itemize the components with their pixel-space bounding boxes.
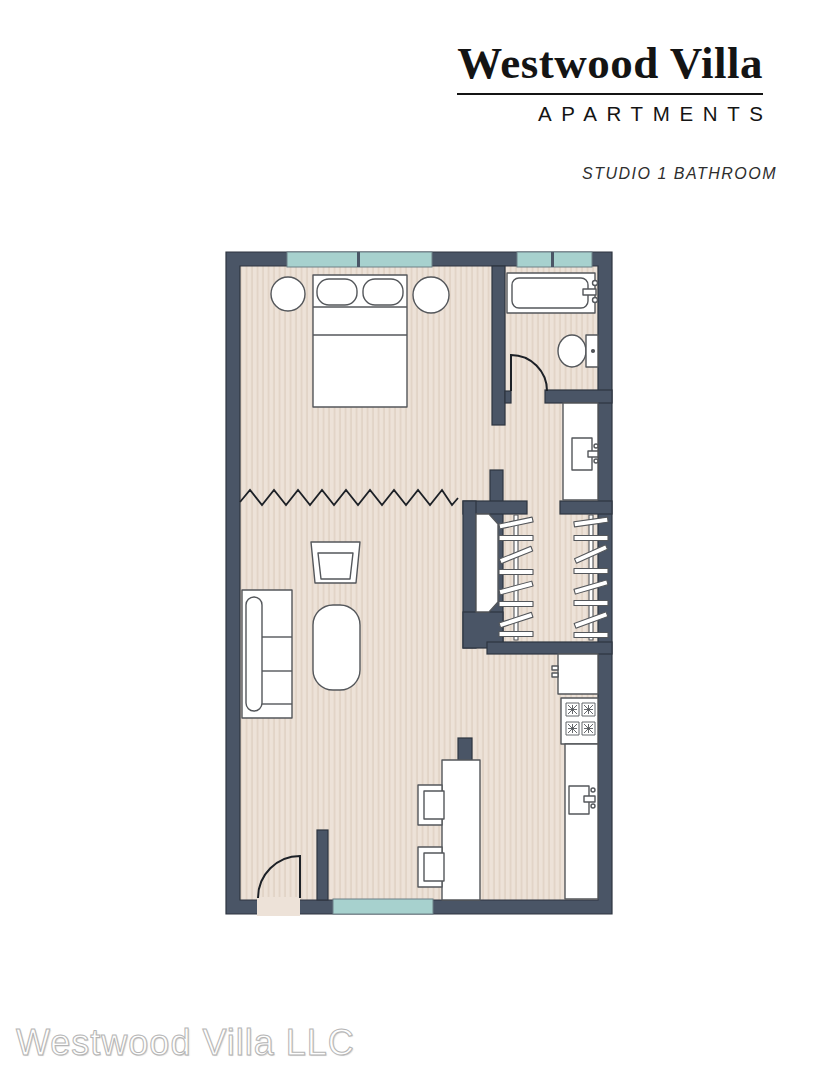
- burner: [566, 703, 579, 716]
- wall-bath-bottom: [545, 390, 612, 403]
- hanger: [574, 569, 608, 574]
- sink-faucet-icon: [584, 796, 595, 802]
- wall-entry-stub: [317, 830, 328, 900]
- wall-bed-bath: [492, 266, 505, 425]
- floor-plan: [0, 0, 833, 1080]
- hanger: [574, 536, 608, 541]
- kitchen-counter: [565, 744, 598, 899]
- hanger: [574, 601, 608, 606]
- refrigerator: [558, 654, 598, 694]
- hanger: [499, 632, 533, 637]
- burner: [566, 722, 579, 735]
- toilet: [558, 335, 598, 367]
- living-window: [333, 899, 433, 914]
- wall-island-stub: [458, 738, 472, 762]
- burner: [582, 722, 595, 735]
- vanity-faucet-icon: [588, 451, 598, 457]
- stove: [561, 698, 598, 744]
- wardrobe-panel: [476, 514, 498, 612]
- nightstand-left: [271, 277, 305, 311]
- hanger: [499, 570, 533, 575]
- entry-door-opening: [257, 897, 300, 916]
- watermark: Westwood Villa LLC: [16, 1022, 355, 1064]
- armchair: [311, 542, 360, 583]
- tub-faucet-icon: [583, 289, 596, 295]
- coffee-table: [313, 605, 360, 690]
- flyer-page: { "header": { "brand_name": "Westwood Vi…: [0, 0, 833, 1080]
- burner: [582, 703, 595, 716]
- stool: [418, 847, 444, 887]
- fridge-handle-icon: [552, 673, 558, 677]
- floor-plan-container: [0, 0, 833, 1080]
- island-counter: [442, 760, 480, 900]
- stool: [418, 785, 444, 825]
- pillow: [363, 279, 403, 305]
- hanger: [574, 633, 608, 638]
- bathtub: [507, 273, 598, 313]
- wall-closet-top-right: [560, 501, 612, 514]
- sofa: [242, 590, 292, 718]
- bathroom-window: [517, 252, 592, 267]
- wall-closet-bottom: [487, 642, 612, 654]
- hanger: [499, 602, 533, 607]
- fridge-handle-icon: [552, 666, 558, 670]
- nightstand-right: [413, 277, 449, 313]
- vanity: [563, 403, 598, 500]
- pillow: [317, 279, 357, 305]
- bed: [313, 275, 407, 407]
- hanger: [499, 536, 533, 541]
- wall-door-jamb: [505, 391, 511, 403]
